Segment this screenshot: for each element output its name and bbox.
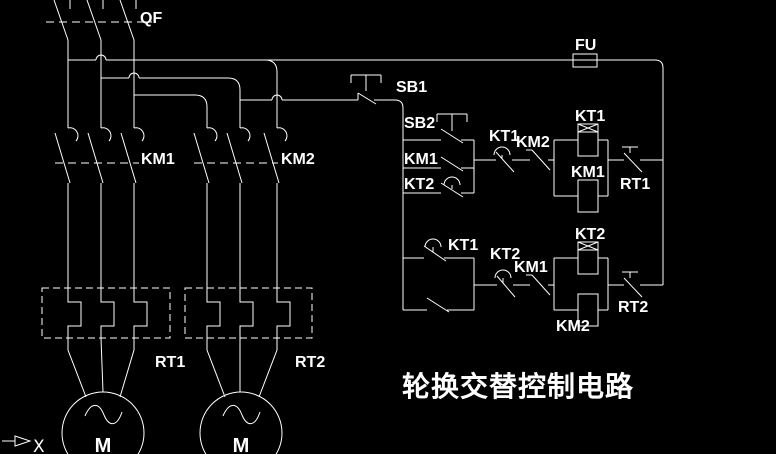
rung1-coils[interactable]: KT1 KM1 RT1 (554, 108, 663, 212)
x-axis-arrow-icon (15, 436, 30, 446)
drawing-title: 轮换交替控制电路 (402, 370, 634, 403)
stop-button-sb1-label: SB1 (396, 79, 427, 96)
rung1-series-contacts[interactable]: KT1 KM2 (474, 128, 554, 172)
motor-1-label: M (95, 435, 112, 454)
ucs-x-label: X (33, 437, 45, 454)
cad-drawing-area[interactable]: QF KM1 KM2 (0, 0, 776, 454)
rung2-coils[interactable]: KT2 KM2 RT2 (554, 226, 663, 335)
rung1-rt1-contact-label: RT1 (620, 176, 650, 193)
rung2-series-contacts[interactable]: KT2 KM1 (474, 246, 554, 297)
rung1-km1-contact-label: KM1 (404, 151, 438, 168)
rung2-rt2-contact-label: RT2 (618, 299, 648, 316)
rung1-parallel-block[interactable]: SB2 KM1 KT2 (403, 114, 474, 197)
sine-wave-icon (223, 405, 260, 423)
breaker-qf[interactable]: QF (46, 0, 162, 40)
schematic-canvas: QF KM1 KM2 (0, 0, 776, 454)
start-button-sb2-label: SB2 (404, 115, 435, 132)
motor-1[interactable]: M (62, 338, 144, 454)
contactor-km1-main[interactable]: KM1 (55, 128, 175, 288)
rung2-kt1-contact-label: KT1 (448, 237, 478, 254)
contactor-km2-label: KM2 (281, 151, 315, 168)
thermal-rt2-label: RT2 (295, 354, 325, 371)
motor-2-label: M (233, 435, 250, 454)
contactor-km1-label: KM1 (141, 151, 175, 168)
rung1-kt2-contact-label: KT2 (404, 176, 434, 193)
thermal-relay-rt1[interactable]: RT1 (42, 288, 185, 371)
rung2-km1-contact-label: KM1 (514, 259, 548, 276)
rung1-kt1-contact-label: KT1 (489, 128, 519, 145)
rung1-km2-contact-label: KM2 (516, 134, 550, 151)
sine-wave-icon (85, 405, 122, 423)
fuse-fu-label: FU (575, 37, 596, 54)
rung1-km1-coil-label: KM1 (571, 164, 605, 181)
rung2-km2-coil-label: KM2 (556, 318, 590, 335)
ucs-icon: X (2, 436, 45, 454)
thermal-rt1-label: RT1 (155, 354, 185, 371)
fuse-fu[interactable]: FU (573, 37, 597, 67)
breaker-qf-label: QF (140, 10, 162, 27)
thermal-relay-rt2[interactable]: RT2 (185, 288, 325, 371)
motor-2[interactable]: M (200, 338, 282, 454)
rung2-kt2-coil-label: KT2 (575, 226, 605, 243)
contactor-km2-main[interactable]: KM2 (194, 128, 315, 288)
rung1-kt1-coil-label: KT1 (575, 108, 605, 125)
rung2-parallel-block[interactable]: KT1 (403, 237, 478, 312)
